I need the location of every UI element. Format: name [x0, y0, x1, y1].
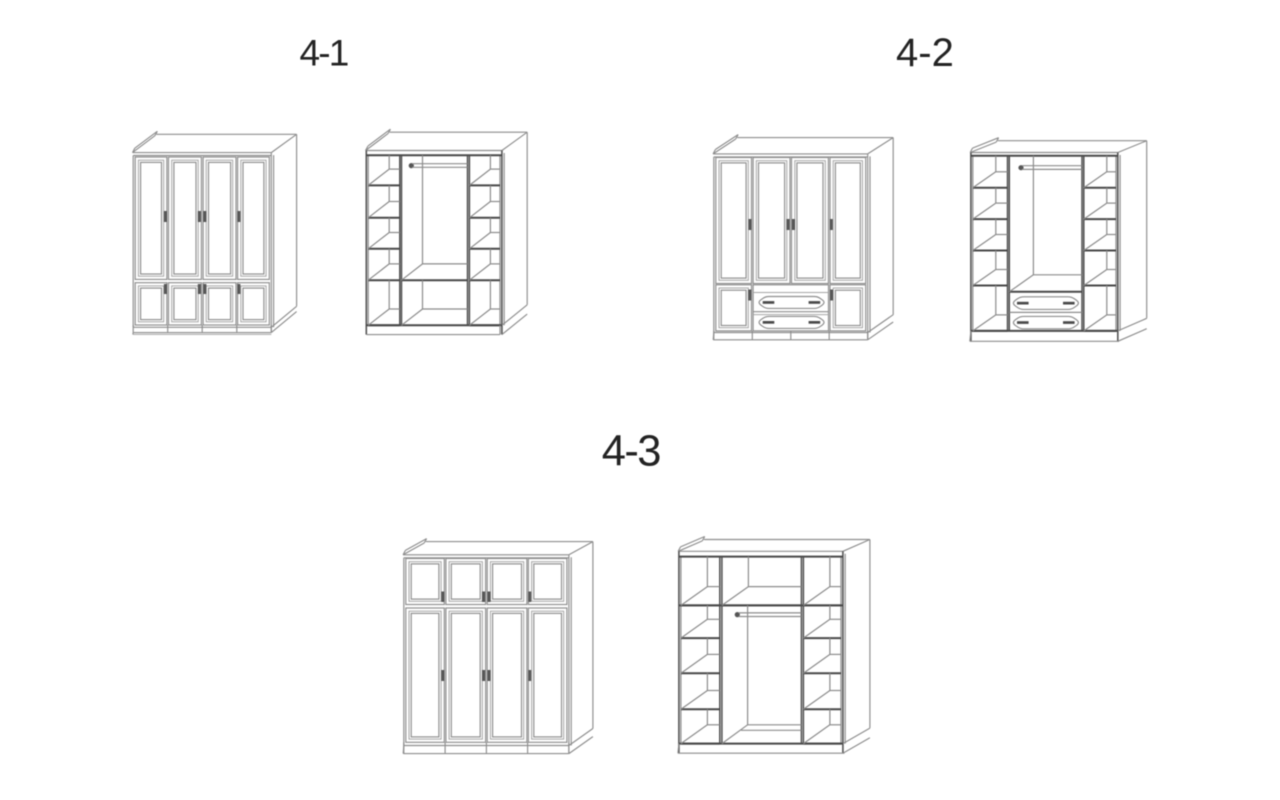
- svg-text:4-1: 4-1: [300, 32, 348, 73]
- svg-text:4-3: 4-3: [602, 427, 660, 475]
- svg-text:4-2: 4-2: [896, 31, 954, 75]
